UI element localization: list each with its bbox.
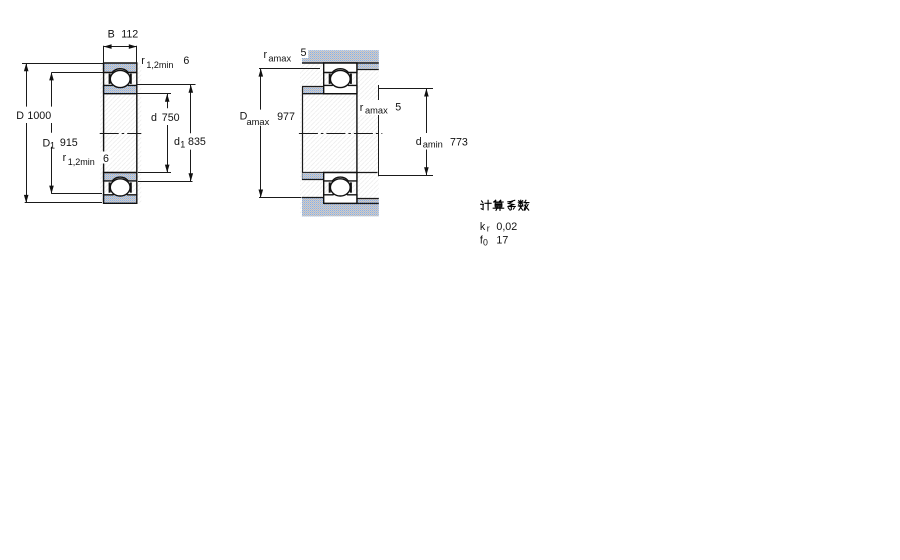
- svg-text:d: d: [151, 112, 157, 124]
- svg-text:773: 773: [450, 137, 468, 149]
- svg-text:5: 5: [395, 101, 401, 113]
- svg-text:d: d: [174, 136, 180, 148]
- svg-text:977: 977: [277, 111, 295, 123]
- svg-text:835: 835: [188, 136, 206, 148]
- svg-text:1,2min: 1,2min: [68, 157, 95, 167]
- svg-text:0,02: 0,02: [496, 221, 517, 233]
- svg-text:5: 5: [301, 47, 307, 59]
- svg-text:1,2min: 1,2min: [146, 60, 173, 70]
- svg-text:1: 1: [50, 140, 55, 150]
- svg-text:17: 17: [496, 235, 508, 247]
- svg-text:1000: 1000: [27, 110, 51, 122]
- svg-text:D: D: [16, 110, 24, 122]
- svg-text:112: 112: [121, 29, 138, 41]
- svg-text:915: 915: [60, 137, 78, 149]
- svg-text:1: 1: [180, 139, 185, 149]
- svg-text:k: k: [480, 221, 486, 233]
- svg-text:r: r: [360, 102, 364, 114]
- svg-text:750: 750: [162, 112, 180, 124]
- svg-text:B: B: [108, 29, 115, 41]
- svg-text:amax: amax: [365, 105, 388, 115]
- svg-text:r: r: [141, 55, 145, 67]
- svg-text:amin: amin: [423, 140, 443, 150]
- svg-text:r: r: [487, 224, 490, 234]
- svg-text:6: 6: [103, 153, 109, 165]
- svg-text:amax: amax: [268, 53, 291, 63]
- svg-text:amax: amax: [247, 117, 270, 127]
- svg-text:d: d: [416, 136, 422, 148]
- svg-text:r: r: [63, 152, 67, 164]
- svg-text:r: r: [264, 49, 268, 61]
- svg-text:6: 6: [183, 55, 189, 67]
- svg-text:0: 0: [483, 238, 488, 248]
